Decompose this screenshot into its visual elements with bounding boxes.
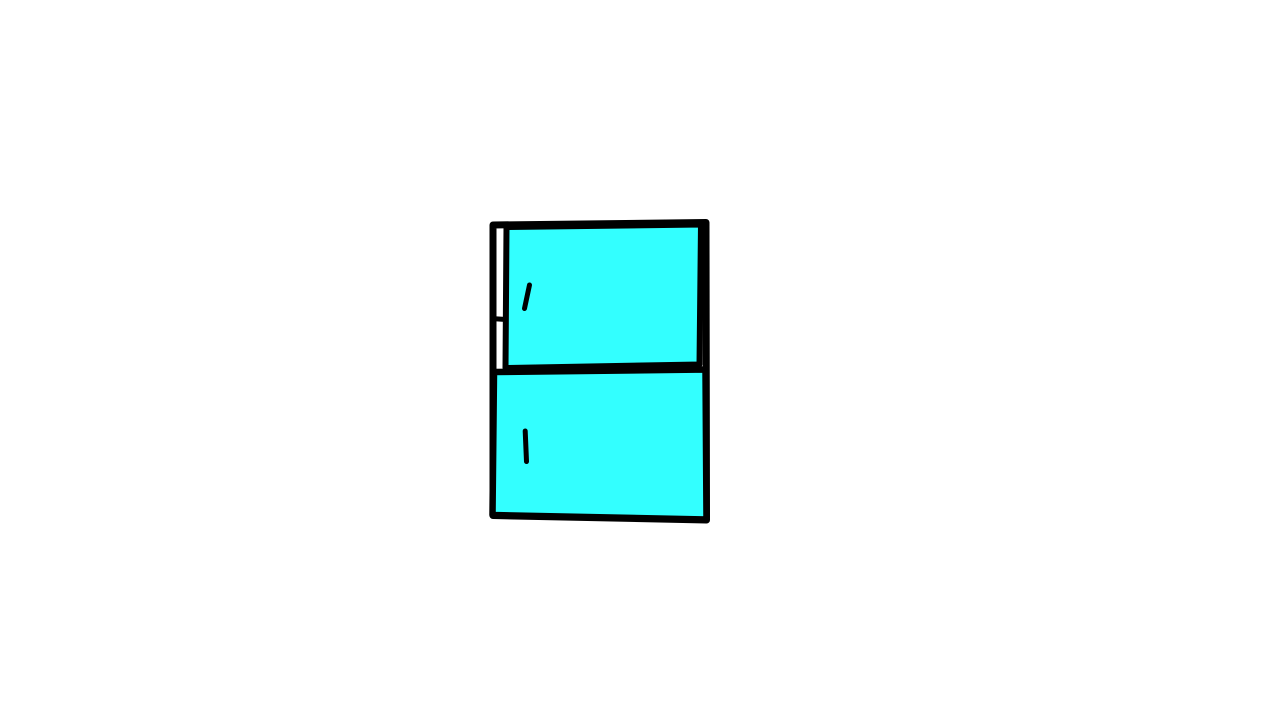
refrigerator <box>491 223 707 521</box>
refrigerator-illustration <box>0 0 1280 720</box>
illustration-canvas <box>0 0 1280 720</box>
hinge-gap-tick <box>491 319 506 320</box>
refrigerator-door-handle <box>525 431 526 462</box>
freezer-door <box>506 225 702 369</box>
